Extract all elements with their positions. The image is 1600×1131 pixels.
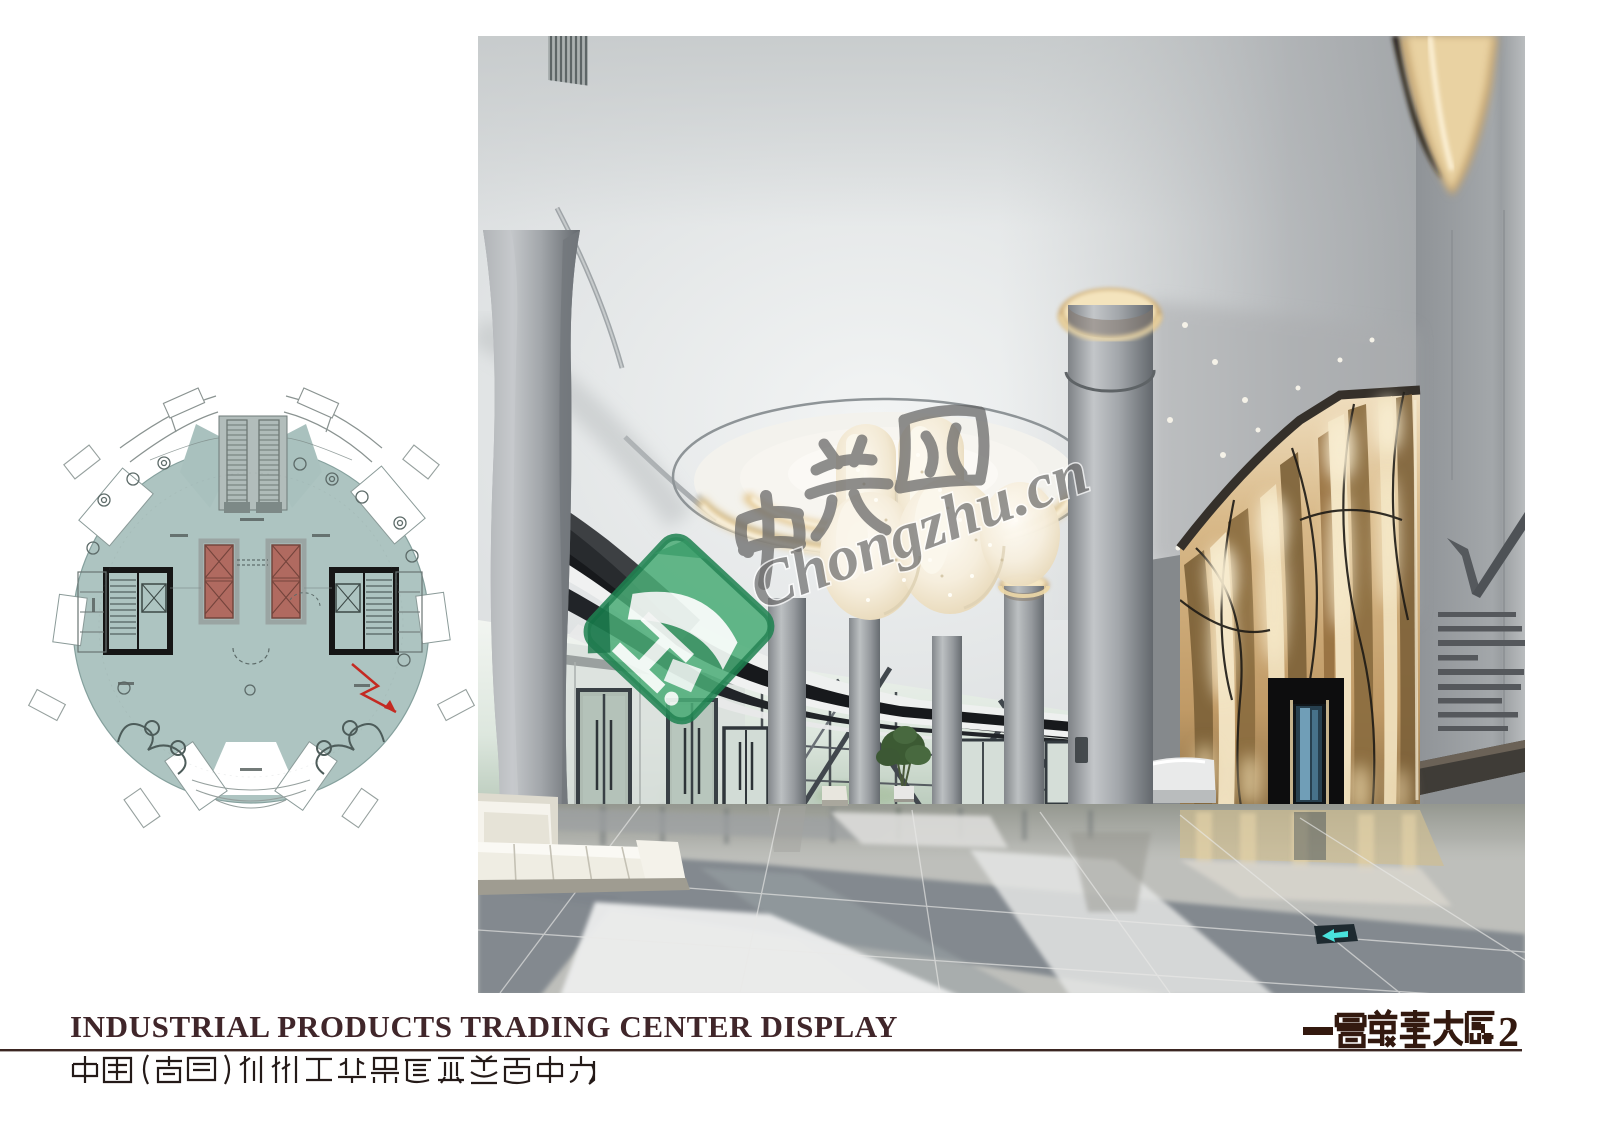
svg-text:2: 2 — [1498, 1010, 1519, 1056]
svg-text:INDUSTRIAL PRODUCTS TRADING CE: INDUSTRIAL PRODUCTS TRADING CENTER DISPL… — [70, 1009, 898, 1044]
